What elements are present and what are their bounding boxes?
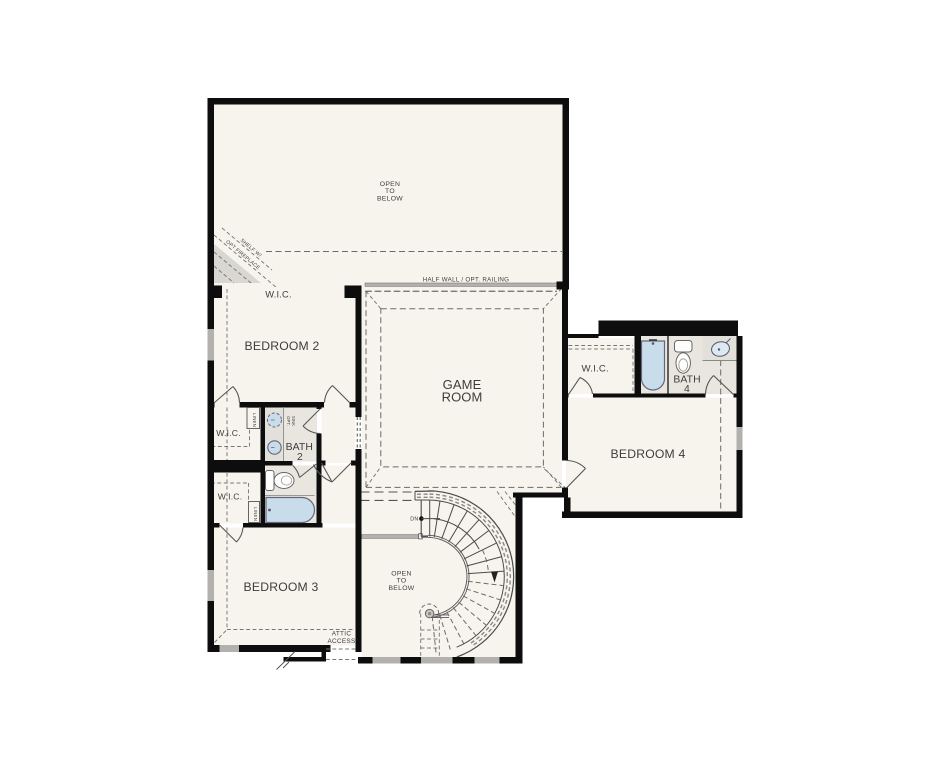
svg-text:BEDROOM 2: BEDROOM 2 [245, 339, 320, 353]
svg-text:4: 4 [684, 384, 690, 395]
svg-text:ROOM: ROOM [442, 390, 483, 405]
svg-text:BELOW: BELOW [388, 585, 414, 592]
svg-text:OPT.: OPT. [286, 416, 291, 426]
svg-text:HALF WALL / OPT. RAILING: HALF WALL / OPT. RAILING [423, 276, 510, 283]
svg-text:DN: DN [410, 517, 418, 523]
svg-text:W.I.C.: W.I.C. [265, 289, 292, 299]
svg-text:BELOW: BELOW [377, 196, 403, 203]
svg-text:ACCESS: ACCESS [327, 638, 355, 645]
svg-text:ATTIC: ATTIC [332, 631, 352, 638]
svg-text:LINEN: LINEN [253, 507, 258, 521]
svg-text:2: 2 [297, 452, 303, 463]
svg-text:TO: TO [385, 188, 395, 195]
svg-text:W.I.C.: W.I.C. [216, 428, 241, 438]
svg-text:W.I.C.: W.I.C. [582, 364, 609, 375]
svg-text:TO: TO [397, 578, 407, 585]
svg-text:OPEN: OPEN [380, 181, 400, 188]
svg-text:W.I.C.: W.I.C. [218, 491, 243, 501]
svg-text:BEDROOM 4: BEDROOM 4 [611, 447, 686, 461]
svg-text:SINK: SINK [291, 416, 296, 426]
svg-text:LINEN: LINEN [252, 413, 257, 427]
svg-text:OPEN: OPEN [391, 571, 411, 578]
svg-text:BEDROOM 3: BEDROOM 3 [244, 580, 319, 594]
